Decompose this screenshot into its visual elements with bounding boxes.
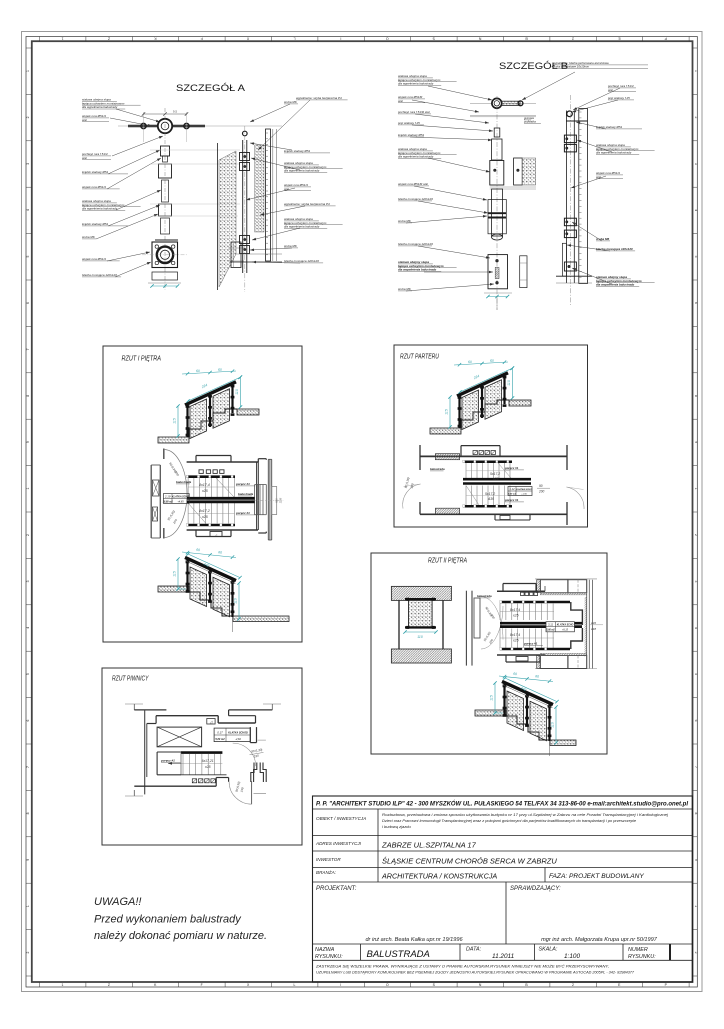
svg-text:dla wypełnienia balustrady: dla wypełnienia balustrady	[398, 82, 434, 86]
svg-text:7: 7	[694, 348, 698, 350]
svg-text:dla wypełnienia balustrady: dla wypełnienia balustrady	[284, 225, 320, 229]
svg-text:KLATKA SCHOD: KLATKA SCHOD	[228, 731, 248, 734]
svg-text:stal: stal	[82, 118, 87, 122]
svg-text:śruba M6: śruba M6	[284, 100, 297, 104]
svg-text:x25: x25	[201, 515, 208, 519]
svg-text:+4,85: +4,85	[177, 500, 184, 503]
svg-text:1: 1	[26, 905, 30, 907]
svg-text:8: 8	[694, 812, 698, 814]
svg-text:60: 60	[196, 548, 200, 552]
svg-text:0.17: 0.17	[217, 730, 223, 734]
svg-text:2: 2	[694, 534, 698, 536]
svg-text:SKALA:: SKALA:	[539, 947, 558, 953]
svg-text:60: 60	[196, 369, 200, 373]
svg-text:F: F	[201, 37, 203, 41]
svg-text:115: 115	[445, 409, 449, 415]
svg-text:Z: Z	[108, 37, 110, 41]
svg-text:8: 8	[26, 812, 30, 814]
svg-text:+8,15: +8,15	[562, 630, 569, 632]
svg-text:90: 90	[539, 484, 543, 488]
svg-text:1: 1	[694, 905, 698, 907]
svg-text:balustrada: balustrada	[477, 594, 492, 598]
svg-text:8x17,4: 8x17,4	[199, 483, 210, 487]
svg-text:wypełnienie: szyba bezpieczna: wypełnienie: szyba bezpieczna P4	[284, 202, 330, 206]
svg-text:Z: Z	[108, 983, 110, 987]
svg-text:8x17,4: 8x17,4	[510, 633, 520, 637]
svg-text:7: 7	[26, 348, 30, 350]
svg-text:A30: A30	[487, 497, 494, 501]
svg-text:60: 60	[468, 360, 472, 364]
svg-text:RZUT I PIĘTRA: RZUT I PIĘTRA	[122, 354, 162, 363]
svg-text:KLATKA SCHO: KLATKA SCHO	[172, 495, 189, 498]
svg-text:poręcz #1: poręcz #1	[160, 759, 175, 763]
svg-text:1:100: 1:100	[564, 953, 580, 960]
svg-text:5x17,2: 5x17,2	[490, 472, 500, 476]
svg-text:2: 2	[694, 116, 698, 118]
svg-text:1: 1	[694, 70, 698, 72]
svg-text:UWAGA!!: UWAGA!!	[94, 896, 141, 908]
svg-text:6: 6	[694, 302, 698, 304]
svg-text:mgr inż arch. Małgorzata Krupa: mgr inż arch. Małgorzata Krupa upr.nr 50…	[541, 937, 658, 943]
svg-text:11.2011: 11.2011	[492, 953, 515, 960]
svg-text:9: 9	[694, 859, 698, 861]
svg-text:60: 60	[218, 368, 222, 372]
svg-text:krążek stalowy Ø51: krążek stalowy Ø51	[596, 125, 623, 129]
svg-text:1148: 1148	[279, 497, 283, 503]
svg-text:5: 5	[26, 256, 30, 258]
svg-text:5: 5	[694, 673, 698, 675]
svg-text:BRANŻA:: BRANŻA:	[316, 869, 337, 875]
svg-text:O: O	[386, 37, 389, 41]
svg-text:3: 3	[26, 580, 30, 582]
svg-text:krążek stalowy Ø51: krążek stalowy Ø51	[82, 222, 109, 226]
svg-text:ZASTRZEGA SIĘ WSZELKIE PRAWA,: ZASTRZEGA SIĘ WSZELKIE PRAWA, WYNIKAJĄCE…	[315, 964, 609, 969]
svg-text:L: L	[293, 37, 295, 41]
svg-text:podkładka: podkładka	[523, 119, 536, 123]
svg-text:ŚLĄSKIE CENTRUM CHORÓB SERCA W: ŚLĄSKIE CENTRUM CHORÓB SERCA W ZABRZU	[382, 857, 557, 866]
svg-text:110: 110	[234, 598, 238, 604]
svg-text:NUMER: NUMER	[628, 947, 648, 953]
svg-text:2: 2	[694, 952, 698, 954]
svg-text:dla wypełnienia balustrady: dla wypełnienia balustrady	[82, 207, 118, 211]
svg-text:I: I	[340, 37, 341, 41]
svg-text:60: 60	[513, 672, 517, 676]
svg-text:120: 120	[591, 621, 596, 625]
svg-text:Rozbudowa, przebudowa i zmiana: Rozbudowa, przebudowa i zmiana sposobu u…	[382, 812, 668, 817]
svg-text:stal: stal	[82, 156, 87, 160]
svg-text:RZUT PIWNICY: RZUT PIWNICY	[112, 674, 149, 683]
svg-text:SPRAWDZAJĄCY:: SPRAWDZAJĄCY:	[510, 886, 561, 892]
svg-text:dla wypełnienia balustrady: dla wypełnienia balustrady	[596, 283, 635, 287]
svg-text:PROJEKTANT:: PROJEKTANT:	[316, 886, 357, 892]
svg-text:I: I	[340, 983, 341, 987]
svg-text:stal: stal	[608, 88, 613, 92]
svg-text:7: 7	[26, 766, 30, 768]
svg-text:O: O	[386, 983, 389, 987]
svg-text:blacha mocująca 120x120: blacha mocująca 120x120	[596, 247, 633, 251]
svg-text:148: 148	[591, 627, 596, 631]
svg-text:8: 8	[694, 395, 698, 397]
svg-text:śruba M6: śruba M6	[398, 287, 411, 291]
svg-text:6x17,21: 6x17,21	[202, 759, 214, 763]
svg-text:poręcz #1: poręcz #1	[504, 498, 519, 502]
svg-text:RZUT PARTERU: RZUT PARTERU	[400, 352, 439, 361]
svg-text:2: 2	[572, 983, 574, 987]
svg-text:poręcz #1: poręcz #1	[235, 482, 250, 486]
svg-text:3.11: 3.11	[548, 623, 554, 627]
svg-text:słupek rura Ø51/4: słupek rura Ø51/4	[82, 257, 106, 261]
svg-text:110: 110	[235, 389, 239, 395]
svg-text:śruba M6: śruba M6	[82, 235, 95, 239]
svg-text:-2,60: -2,60	[235, 738, 241, 741]
svg-text:5,80 m2: 5,80 m2	[215, 738, 225, 741]
svg-text:śruba M6: śruba M6	[398, 219, 411, 223]
svg-text:RZUT II PIĘTRA: RZUT II PIĘTRA	[428, 556, 467, 565]
svg-text:OBIEKT / INWESTYCJA: OBIEKT / INWESTYCJA	[316, 816, 366, 821]
svg-text:8x17,4: 8x17,4	[510, 608, 520, 612]
svg-text:820: 820	[275, 498, 279, 503]
svg-text:6: 6	[694, 720, 698, 722]
svg-text:18,80 m2: 18,80 m2	[163, 500, 174, 503]
svg-text:◿: ◿	[210, 720, 213, 724]
svg-text:słupek rura Ø51/4: słupek rura Ø51/4	[82, 185, 106, 189]
svg-text:5: 5	[26, 673, 30, 675]
svg-text:5: 5	[694, 256, 698, 258]
svg-text:śruba M6: śruba M6	[596, 237, 610, 241]
svg-text:balustrada: balustrada	[176, 480, 192, 484]
svg-text:9: 9	[694, 441, 698, 443]
svg-text:śruba M6: śruba M6	[284, 244, 297, 248]
svg-text:UZUPEŁNIANY LUB ODSTĄPIONY KOM: UZUPEŁNIANY LUB ODSTĄPIONY KOMUKOLWIEK B…	[316, 971, 635, 975]
svg-text:9: 9	[26, 441, 30, 443]
svg-text:3: 3	[694, 163, 698, 165]
svg-text:krążek stalowy Ø51: krążek stalowy Ø51	[398, 133, 425, 137]
svg-text:należy dokonać pomiaru w natur: należy dokonać pomiaru w naturze.	[94, 930, 267, 942]
svg-text:blacha mocująca 120x120: blacha mocująca 120x120	[398, 197, 433, 201]
svg-text:krążek stalowy Ø51: krążek stalowy Ø51	[284, 149, 311, 153]
svg-text:1.12: 1.12	[509, 487, 515, 491]
svg-text:KLATKA SCHO: KLATKA SCHO	[557, 625, 574, 627]
svg-text:4: 4	[694, 627, 698, 629]
svg-text:poręcz #1: poręcz #1	[523, 642, 538, 646]
svg-text:1: 1	[62, 983, 64, 987]
svg-text:L: L	[294, 983, 296, 987]
svg-text:KLATKA SCHO: KLATKA SCHO	[516, 489, 532, 491]
svg-text:dla wypełnienia balustrady: dla wypełnienia balustrady	[596, 151, 632, 155]
svg-text:110: 110	[417, 635, 423, 639]
svg-text:poręcz #1: poręcz #1	[235, 511, 250, 515]
svg-text:110: 110	[551, 722, 555, 728]
svg-text:wypełnienie: szyba bezpieczna: wypełnienie: szyba bezpieczna P4	[296, 96, 342, 100]
svg-text:ZABRZE UL.SZPITALNA 17: ZABRZE UL.SZPITALNA 17	[381, 841, 477, 850]
svg-text:F: F	[201, 983, 203, 987]
svg-text:pochwyt rura f 51/R stal: pochwyt rura f 51/R stal	[397, 110, 430, 114]
svg-text:+1,55: +1,55	[521, 494, 527, 496]
svg-text:2: 2	[26, 534, 30, 536]
svg-text:6: 6	[26, 720, 30, 722]
svg-text:x25: x25	[201, 489, 208, 493]
svg-text:60: 60	[218, 550, 222, 554]
svg-text:dr inż arch. Beata Kałka upr.n: dr inż arch. Beata Kałka upr.nr 19/1996	[365, 937, 463, 943]
svg-text:3: 3	[694, 580, 698, 582]
svg-text:5,60 m2: 5,60 m2	[546, 630, 555, 632]
svg-text:200: 200	[538, 490, 545, 494]
svg-text:BALUSTRADA: BALUSTRADA	[367, 949, 430, 960]
svg-text:ADRES INWESTYCJI: ADRES INWESTYCJI	[315, 841, 362, 846]
svg-text:9.5: 9.5	[173, 110, 178, 114]
svg-text:8: 8	[26, 395, 30, 397]
svg-text:2: 2	[26, 952, 30, 954]
svg-text:1: 1	[61, 37, 63, 41]
svg-text:110: 110	[507, 380, 511, 386]
svg-text:4: 4	[26, 209, 30, 211]
svg-text:4: 4	[26, 627, 30, 629]
svg-text:5x17,2: 5x17,2	[485, 492, 495, 496]
svg-text:SZCZEGÓŁ A: SZCZEGÓŁ A	[176, 83, 245, 93]
svg-text:x25: x25	[512, 639, 519, 643]
svg-text:1: 1	[26, 70, 30, 72]
svg-text:stal: stal	[398, 99, 403, 103]
svg-text:balustrada: balustrada	[238, 492, 254, 496]
svg-text:pręt stalowy f 25: pręt stalowy f 25	[607, 96, 630, 100]
svg-text:6: 6	[26, 302, 30, 304]
svg-text:ARCHITEKTURA / KONSTRUKCJA: ARCHITEKTURA / KONSTRUKCJA	[381, 872, 497, 881]
svg-text:60: 60	[535, 674, 539, 678]
svg-text:dla wypełnienia balustrady: dla wypełnienia balustrady	[284, 169, 320, 173]
svg-text:dla wypełnienia balustrady: dla wypełnienia balustrady	[398, 268, 437, 272]
svg-text:P. P. "ARCHITEKT STUDIO ILP" 4: P. P. "ARCHITEKT STUDIO ILP" 42 - 300 MY…	[316, 799, 688, 808]
svg-text:x25: x25	[492, 477, 499, 481]
svg-text:3: 3	[26, 163, 30, 165]
svg-text:2.19: 2.19	[164, 494, 171, 498]
svg-text:8x17,2: 8x17,2	[199, 509, 210, 513]
svg-text:słupek rura Ø51/R stal: słupek rura Ø51/R stal	[398, 182, 428, 186]
svg-text:oczka kwadratowe 10x10mm: oczka kwadratowe 10x10mm	[553, 65, 590, 69]
svg-text:NAZWA: NAZWA	[315, 947, 335, 953]
svg-text:krążek stalowy Ø51: krążek stalowy Ø51	[82, 170, 109, 174]
svg-text:x25: x25	[204, 765, 211, 769]
svg-text:60: 60	[490, 359, 494, 363]
svg-text:poręcz #1: poręcz #1	[504, 466, 519, 470]
svg-text:1: 1	[26, 488, 30, 490]
svg-text:blacha mocująca 120x120: blacha mocująca 120x120	[82, 273, 117, 277]
svg-text:DATA:: DATA:	[466, 947, 482, 953]
svg-text:115: 115	[173, 418, 177, 424]
svg-text:x25: x25	[512, 614, 519, 618]
svg-text:115: 115	[173, 571, 177, 577]
svg-text:RYSUNKU:: RYSUNKU:	[315, 954, 343, 960]
svg-text:dla wypełnienia balustrady: dla wypełnienia balustrady	[82, 105, 118, 109]
svg-text:FAZA: PROJEKT BUDOWLANY: FAZA: PROJEKT BUDOWLANY	[549, 873, 644, 880]
svg-text:i budową zjazdu: i budową zjazdu	[382, 824, 411, 829]
svg-text:2: 2	[26, 116, 30, 118]
svg-text:balustrada: balustrada	[430, 467, 445, 471]
svg-text:RYSUNKU:: RYSUNKU:	[628, 954, 656, 960]
svg-text:1: 1	[694, 488, 698, 490]
svg-text:blacha mocująca 120x120: blacha mocująca 120x120	[284, 259, 319, 263]
svg-text:Dzieci oraz Pracowni Immunolog: Dzieci oraz Pracowni Immunologii Transpl…	[382, 818, 637, 823]
svg-text:9: 9	[26, 859, 30, 861]
svg-text:7: 7	[694, 766, 698, 768]
svg-text:Przed wykonaniem balustrady: Przed wykonaniem balustrady	[94, 914, 242, 926]
svg-text:INWESTOR: INWESTOR	[316, 857, 341, 862]
svg-text:2: 2	[572, 37, 574, 41]
svg-text:115: 115	[490, 695, 494, 701]
svg-text:5,60 m2: 5,60 m2	[508, 494, 517, 496]
svg-text:blacha mocująca 120x120: blacha mocująca 120x120	[398, 242, 433, 246]
svg-text:4: 4	[694, 209, 698, 211]
svg-text:pręt stalowy f 25: pręt stalowy f 25	[397, 121, 420, 125]
